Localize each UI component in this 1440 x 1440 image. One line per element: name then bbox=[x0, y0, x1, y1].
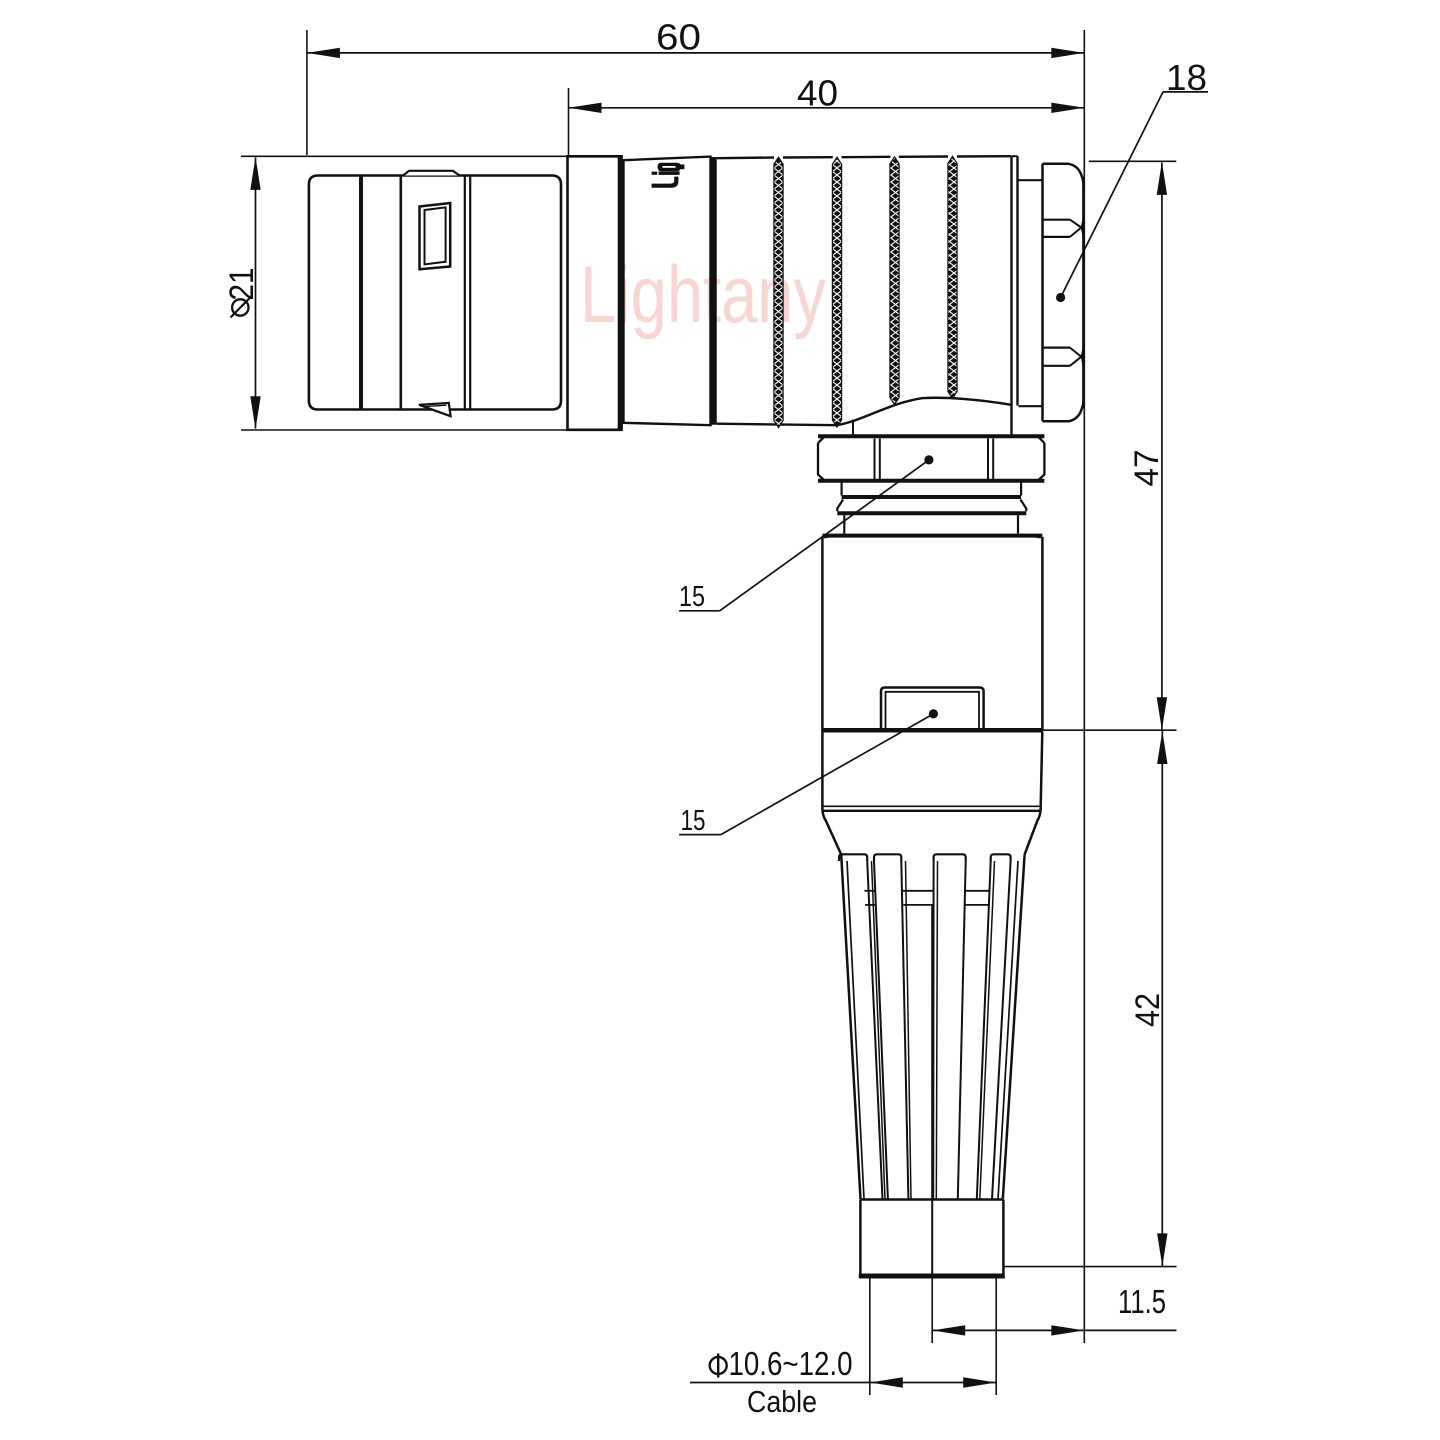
svg-text:Lightany: Lightany bbox=[580, 250, 826, 340]
svg-text:60: 60 bbox=[656, 17, 701, 58]
svg-text:42: 42 bbox=[1129, 993, 1167, 1027]
svg-text:15: 15 bbox=[679, 581, 705, 613]
svg-text:Cable: Cable bbox=[747, 1384, 817, 1419]
svg-text:21: 21 bbox=[223, 268, 261, 301]
svg-text:40: 40 bbox=[797, 73, 838, 114]
svg-text:47: 47 bbox=[1128, 450, 1166, 487]
svg-text:10.6~12.0: 10.6~12.0 bbox=[729, 1345, 853, 1382]
svg-text:15: 15 bbox=[681, 805, 706, 837]
svg-text:11.5: 11.5 bbox=[1118, 1283, 1166, 1320]
